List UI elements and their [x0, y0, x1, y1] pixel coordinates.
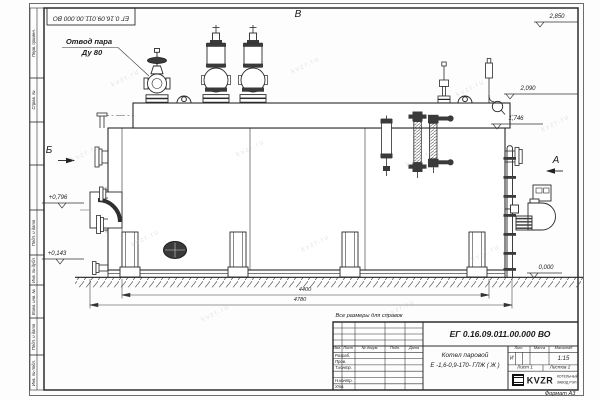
scale-label: Масштаб: [555, 347, 573, 351]
elevation-gauge: 1,746: [508, 116, 523, 122]
steam-outlet-dn: Ду 80: [82, 49, 102, 57]
side-stamp-inv-dubl: Инв. № дубл.: [31, 257, 35, 283]
title-name-line2: Е -1,6-0,9-170- ГЛЖ ( Ж ): [430, 363, 499, 369]
rear-nozzle: [505, 148, 522, 166]
elevation-burner-axis: +0,796: [49, 195, 68, 201]
kvzr-logo-icon: [512, 374, 524, 386]
ground-hatch: [75, 277, 583, 287]
side-stamp-vzam-inv: Взам. инв. №: [31, 289, 35, 315]
sheet-number: Лист 1: [517, 366, 533, 371]
company-line2: ЗАВОД РЭП: [557, 381, 576, 384]
boiler-drum: [133, 103, 510, 128]
col-data: Дата: [409, 347, 419, 351]
ground: [75, 277, 583, 287]
row-prov: Пров.: [335, 360, 346, 364]
view-label-a: А: [553, 156, 560, 166]
row-utv: Утв.: [335, 385, 345, 389]
side-stamp-podp-data-1: Подп. и дата: [31, 219, 35, 245]
col-doc: № докум.: [362, 347, 379, 351]
side-stamp-perv-primen: Перв. примен.: [31, 29, 35, 57]
elevation-drum: 2,090: [520, 86, 535, 92]
side-stamp-podp-data-2: Подп. и дата: [31, 323, 35, 349]
drawing-sheet: kvzr.ru kvzr.ru kvzr.ru kvzr.ru kvzr.ru …: [0, 0, 600, 400]
sheets-total: Листов 2: [550, 366, 571, 371]
kvzr-logo-text: KVZR: [527, 376, 554, 385]
col-izm: Изм.: [333, 347, 341, 351]
mass-label: Масса: [534, 347, 545, 351]
row-razrab: Разраб.: [335, 353, 350, 357]
view-label-b: Б: [46, 146, 53, 156]
row-nkontr: Н.контр.: [335, 378, 353, 382]
row-tkontr: Т.контр.: [335, 366, 352, 370]
drawing-linework: [0, 0, 600, 400]
side-stamp-inv-podl: Инв. № подл.: [31, 360, 35, 386]
side-stamp-sprav: Справ. №: [31, 90, 35, 109]
dimension-overall: 4780: [294, 298, 306, 304]
dimension-legs-span: 4400: [299, 288, 311, 294]
format-label: Формат А3: [545, 392, 576, 398]
corner-stamp-number: ЕГ 0.16.09.011.00.000 ВО: [53, 13, 129, 20]
safety-valve-2: [239, 25, 268, 102]
litera-value: И: [510, 356, 514, 361]
elevation-manhole: +0,143: [48, 251, 67, 257]
thermometer-fitting: [438, 62, 450, 103]
col-list: Лист: [343, 347, 353, 351]
elevation-top: 2,850: [549, 14, 564, 20]
title-name-line1: Котел паровой: [442, 353, 489, 360]
view-label-v: В: [295, 10, 302, 20]
col-podp: Подп.: [390, 347, 400, 351]
company-line1: КОТЕЛЬНЫЙ: [557, 375, 578, 378]
manhole: [164, 242, 187, 259]
scale-value: 1:15: [558, 356, 570, 362]
steam-outlet-label: Отвод пара: [66, 38, 112, 46]
reference-note: Все размеры для справок: [336, 314, 403, 320]
safety-valve-1: [202, 25, 231, 102]
elevation-ground: 0,000: [538, 265, 553, 271]
title-doc-number: ЕГ 0.16.09.011.00.000 ВО: [450, 330, 551, 339]
lit-label: Лит.: [515, 347, 524, 351]
